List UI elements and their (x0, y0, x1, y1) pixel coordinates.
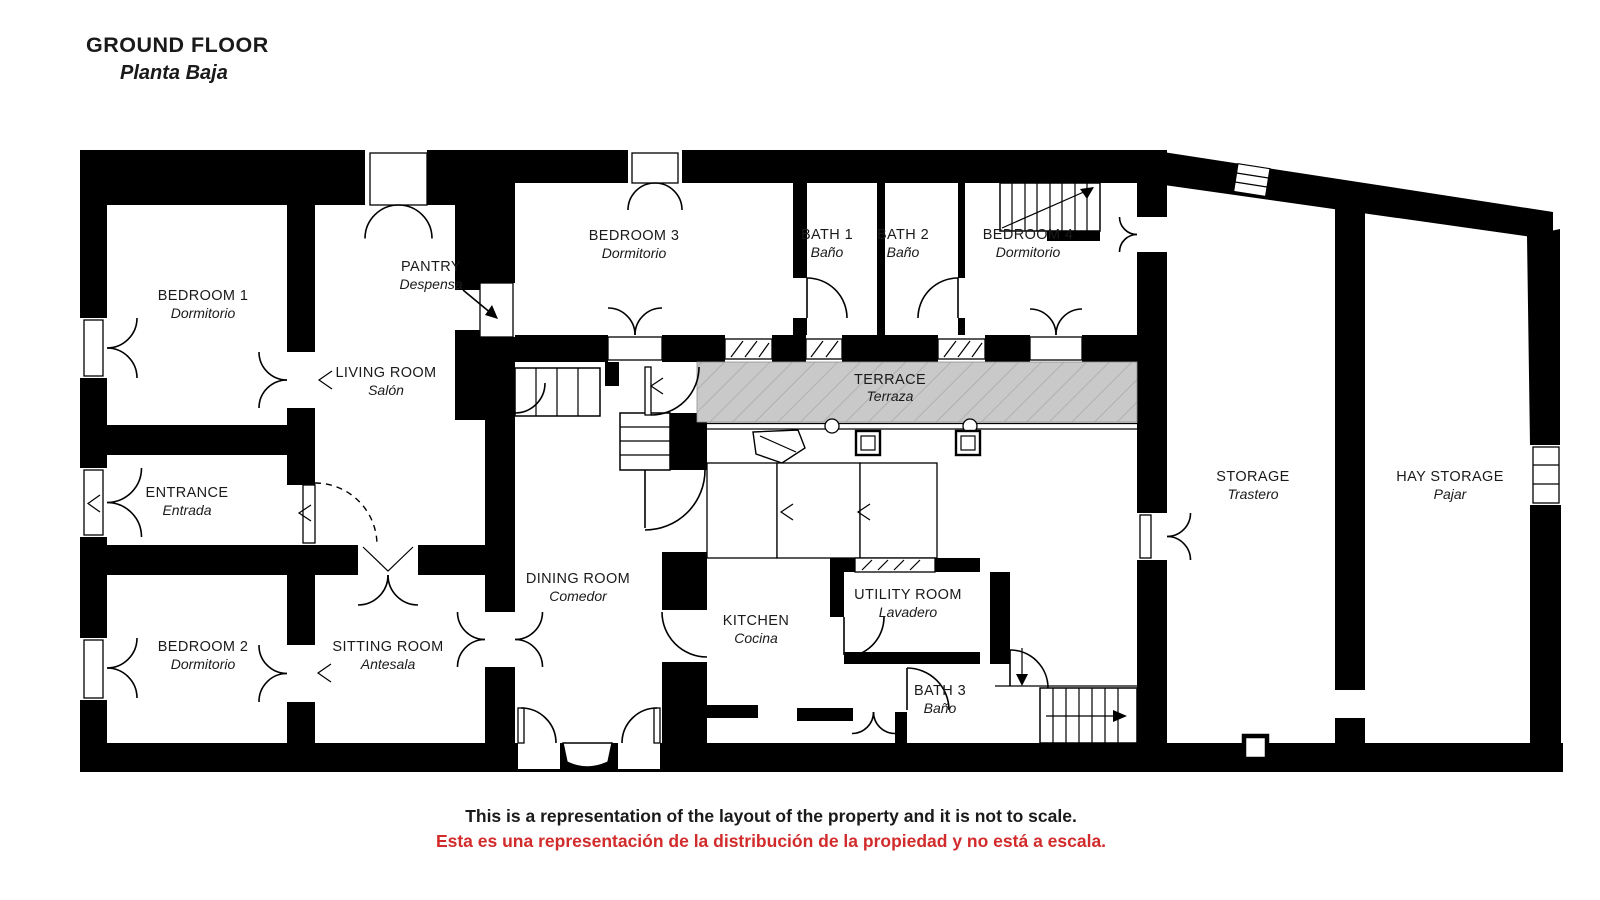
room-label-storage: STORAGE Trastero (1216, 469, 1289, 502)
door-chevron (651, 378, 663, 394)
double-door-sitting-dining (458, 612, 543, 667)
door-bedroom1-living (259, 352, 332, 408)
room-name: BEDROOM 2 (158, 639, 249, 655)
storage-divider-wall (1335, 205, 1365, 690)
bottom-wall (80, 743, 1563, 772)
door-bath1 (793, 278, 847, 318)
room-label-sitting: SITTING ROOM Antesala (332, 639, 443, 672)
room-name: BEDROOM 4 (983, 227, 1074, 243)
utility-window (855, 558, 935, 572)
room-alt-name: Cocina (734, 630, 778, 646)
disclaimer-english: This is a representation of the layout o… (465, 806, 1077, 826)
room-name: BATH 2 (877, 227, 929, 243)
kitchen-swing-door (852, 712, 895, 734)
door-utility (830, 617, 884, 657)
room-name: BEDROOM 3 (589, 228, 680, 244)
room-label-bedroom1: BEDROOM 1 Dormitorio (158, 288, 249, 321)
room-label-bath1: BATH 1 Baño (801, 227, 853, 260)
room-alt-name: Dormitorio (171, 305, 236, 321)
terrace-window-2 (806, 339, 842, 359)
door-bedroom3-corridor (608, 308, 662, 360)
title-spanish: Planta Baja (120, 62, 228, 84)
room-label-bedroom4: BEDROOM 4 Dormitorio (983, 227, 1074, 260)
door-chevron (318, 664, 331, 682)
bedroom2-window (80, 638, 137, 700)
room-label-bedroom3: BEDROOM 3 Dormitorio (589, 228, 680, 261)
railing-post-round (825, 419, 839, 433)
bedroom4-stairs (1000, 183, 1100, 231)
room-name: HAY STORAGE (1396, 469, 1504, 485)
door-chevron (319, 371, 332, 389)
room-label-dining: DINING ROOM Comedor (526, 571, 630, 604)
terrace-window-1 (725, 339, 772, 359)
door-entrance-living (287, 483, 377, 545)
room-label-utility: UTILITY ROOM Lavadero (854, 587, 962, 620)
room-alt-name: Antesala (360, 656, 416, 672)
room-name: SITTING ROOM (332, 639, 443, 655)
door-corridor-terrace (645, 367, 699, 415)
terrace-floor (697, 362, 1137, 422)
dining-exterior-doors (518, 708, 660, 769)
room-alt-name: Dormitorio (996, 244, 1061, 260)
room-name: TERRACE (854, 372, 926, 388)
pantry-niche (480, 283, 513, 337)
room-alt-name: Pajar (1434, 486, 1468, 502)
room-label-hay-storage: HAY STORAGE Pajar (1396, 469, 1504, 502)
room-name: UTILITY ROOM (854, 587, 962, 603)
room-name: BATH 3 (914, 683, 966, 699)
bedroom3-top-door (628, 153, 682, 210)
door-bedroom4-terrace (1030, 309, 1082, 360)
central-stairs (620, 413, 670, 470)
room-name: BATH 1 (801, 227, 853, 243)
room-alt-name: Baño (924, 700, 957, 716)
door-living-sitting (358, 545, 418, 605)
room-alt-name: Dormitorio (602, 245, 667, 261)
room-alt-name: Dormitorio (171, 656, 236, 672)
room-name: DINING ROOM (526, 571, 630, 587)
door-bath2 (918, 278, 965, 318)
door-corridor-kitchen (645, 470, 705, 530)
title-english: GROUND FLOOR (86, 33, 269, 57)
bedroom1-window (80, 318, 137, 378)
plan-title: GROUND FLOOR Planta Baja (86, 33, 269, 84)
room-label-bath3: BATH 3 Baño (914, 683, 966, 716)
room-alt-name: Lavadero (879, 604, 938, 620)
room-label-bedroom2: BEDROOM 2 Dormitorio (158, 639, 249, 672)
room-name: STORAGE (1216, 469, 1289, 485)
room-alt-name: Terraza (867, 388, 914, 404)
terrace-window-3 (938, 339, 985, 359)
floor-plan-page: GROUND FLOOR Planta Baja (0, 0, 1600, 900)
room-alt-name: Despensa (399, 276, 462, 292)
room-alt-name: Baño (887, 244, 920, 260)
storage-window (1137, 513, 1191, 560)
room-name: KITCHEN (723, 613, 789, 629)
door-bedroom2-sitting (259, 645, 331, 702)
room-name: LIVING ROOM (335, 365, 436, 381)
room-alt-name: Baño (811, 244, 844, 260)
room-alt-name: Comedor (549, 588, 608, 604)
door-dining-kitchen (662, 610, 707, 662)
terrace-column-base (856, 431, 880, 455)
room-label-pantry: PANTRY Despensa (399, 259, 462, 292)
door-bedroom4-storage (1120, 217, 1168, 252)
room-name: BEDROOM 1 (158, 288, 249, 304)
room-alt-name: Entrada (162, 502, 211, 518)
rear-stairs (995, 648, 1137, 743)
floor-plan-canvas: GROUND FLOOR Planta Baja (0, 0, 1600, 900)
room-name: ENTRANCE (146, 485, 229, 501)
entrance-exterior-door (80, 468, 142, 537)
room-alt-name: Salón (368, 382, 404, 398)
room-label-living: LIVING ROOM Salón (335, 365, 436, 398)
kitchen-sink (753, 430, 805, 463)
living-room-top-door (365, 153, 432, 239)
down-arrow (1016, 674, 1028, 686)
room-label-entrance: ENTRANCE Entrada (146, 485, 229, 518)
terrace-column-base (956, 431, 980, 455)
room-alt-name: Trastero (1227, 486, 1278, 502)
hay-storage-window (1533, 447, 1559, 503)
storage-column (1244, 736, 1267, 759)
disclaimer-spanish: Esta es una representación de la distrib… (436, 831, 1106, 851)
room-name: PANTRY (401, 259, 461, 275)
right-wall-upper (1527, 229, 1560, 445)
kitchen-counters (707, 430, 937, 558)
slanted-wall-window (1234, 164, 1270, 197)
disclaimer: This is a representation of the layout o… (436, 806, 1106, 851)
room-label-kitchen: KITCHEN Cocina (723, 613, 789, 646)
landing-stairs (515, 368, 600, 416)
curved-step (563, 743, 612, 767)
